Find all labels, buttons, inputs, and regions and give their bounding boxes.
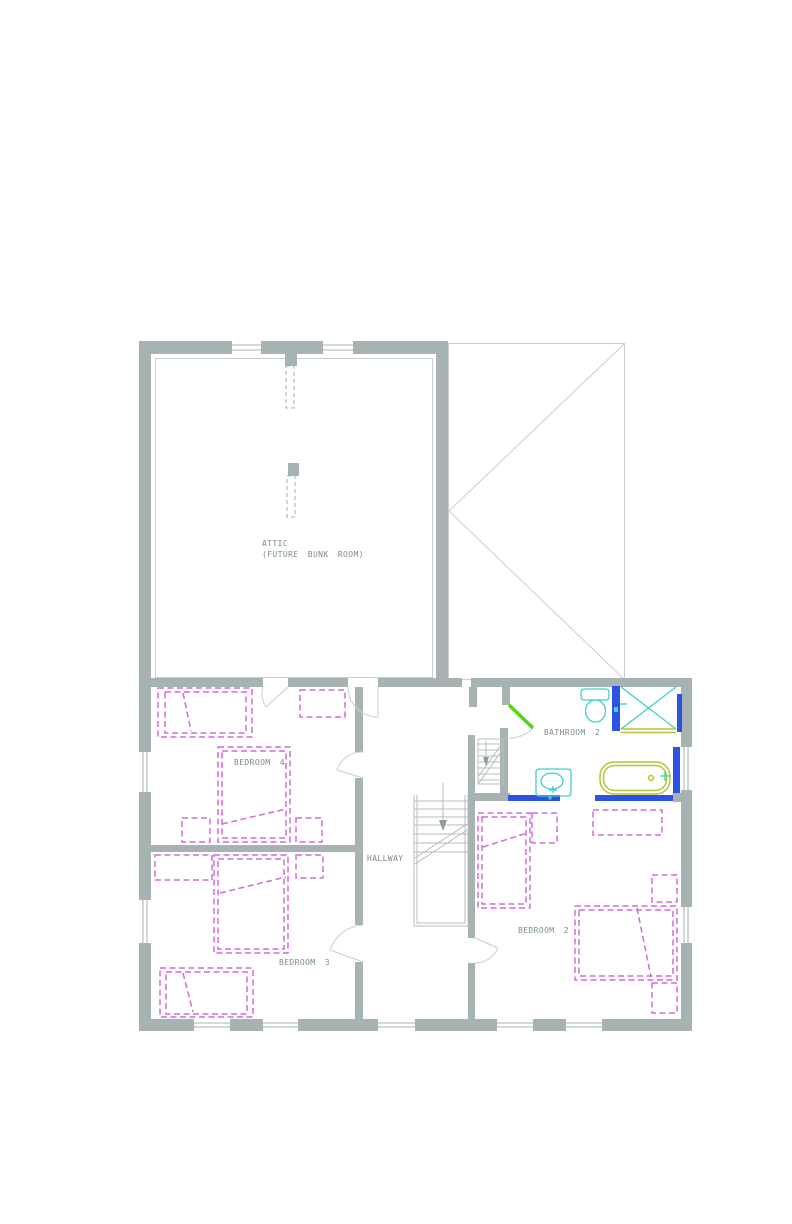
furniture-outline (155, 855, 212, 880)
bed-outline (160, 968, 253, 1017)
bath (600, 762, 671, 794)
roof-void-outline (449, 344, 625, 680)
room-label-hallway: HALLWAY (367, 853, 404, 864)
bed-outline (478, 813, 530, 908)
attic-inner-wall-line (156, 359, 433, 678)
bed-outline (214, 855, 288, 953)
attic-sublabel: (FUTURE BUNK ROOM) (262, 549, 364, 560)
bathroom-tiled-walls (508, 686, 682, 801)
furniture-outline (652, 875, 677, 902)
walls (139, 341, 692, 1031)
door-swings (262, 687, 533, 963)
furniture-outline (652, 983, 677, 1013)
bathroom2-door (509, 705, 533, 738)
furniture-outline (296, 855, 323, 878)
room-label-bedroom-4: BEDROOM 4 (234, 757, 285, 768)
stair-down-arrow (439, 783, 447, 831)
furniture-outline (296, 818, 322, 842)
bed-outline (158, 688, 252, 737)
bedroom4-top-door (262, 687, 288, 707)
room-label-bedroom-3: BEDROOM 3 (279, 957, 330, 968)
room-label-bathroom-2: BATHROOM 2 (544, 727, 600, 738)
floor-plan-drawing (0, 0, 792, 1224)
toilet (581, 689, 609, 722)
bedroom3-door (330, 925, 363, 962)
room-label-bedroom-2: BEDROOM 2 (518, 925, 569, 936)
floor-plan-canvas: ATTIC (FUTURE BUNK ROOM) BEDROOM 4 HALLW… (0, 0, 792, 1224)
attic-staircase (478, 739, 503, 784)
bathroom-fixtures (536, 687, 676, 800)
bed-outline (575, 906, 677, 980)
furniture-outline (593, 810, 662, 835)
furniture-outline (532, 813, 557, 843)
shower (614, 687, 676, 733)
shower-valve (614, 707, 618, 712)
chimney-flue (286, 366, 295, 517)
main-staircase (414, 783, 468, 926)
furniture-outline (300, 690, 345, 717)
room-label-attic: ATTIC (FUTURE BUNK ROOM) (262, 538, 364, 560)
bedroom4-door (337, 752, 363, 778)
furniture-outline (182, 818, 210, 842)
attic-label: ATTIC (262, 538, 364, 549)
bedroom2-door (475, 938, 498, 963)
